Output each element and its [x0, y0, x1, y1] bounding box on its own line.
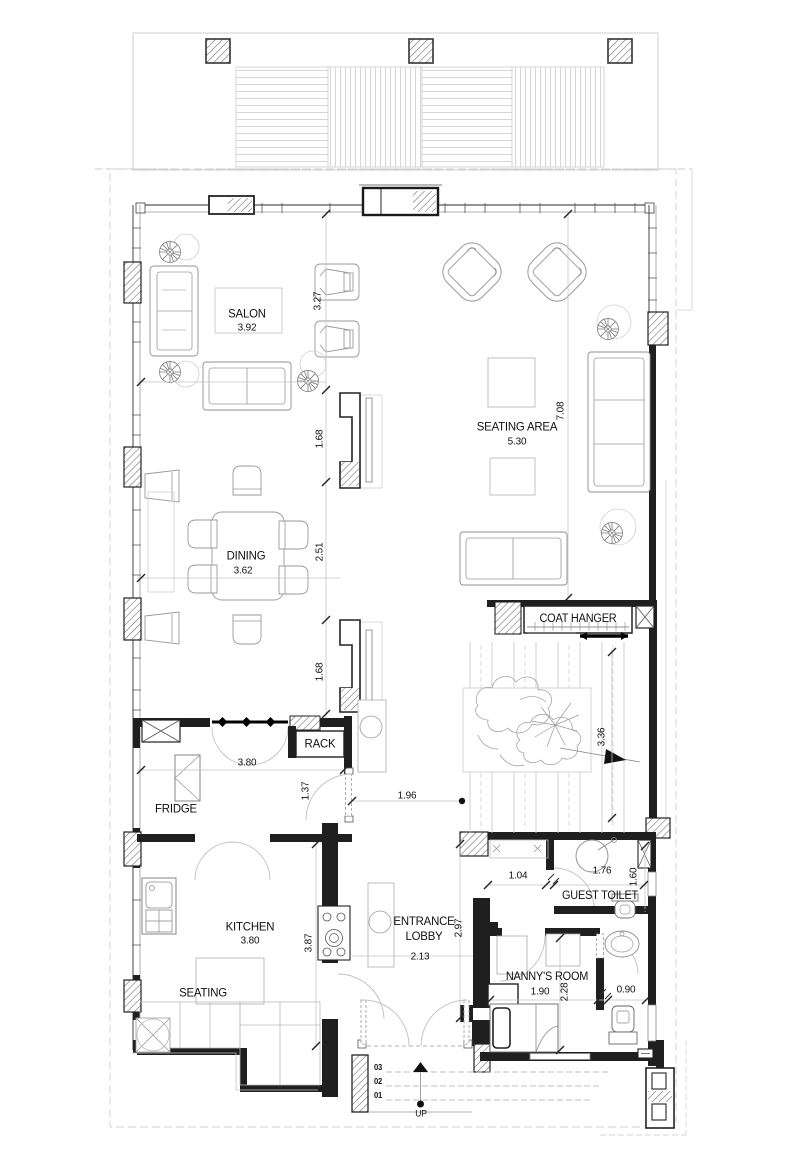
pantry-door — [306, 768, 353, 822]
dim-lobby-depth: 2.97 — [452, 919, 465, 938]
label-kitchen-seating: SEATING — [179, 986, 227, 1001]
stair-direction-arrow — [604, 749, 626, 764]
seating-area-furniture — [437, 237, 650, 585]
dim-salon-depth: 3.27 — [311, 292, 324, 311]
entrance-steps — [386, 1062, 610, 1108]
label-rack: RACK — [305, 737, 336, 752]
entrance-door — [358, 1000, 472, 1048]
dim-hall-passage: 1.96 — [398, 789, 417, 802]
kitchen-door-arcs — [195, 842, 270, 880]
shaft-box — [636, 606, 654, 628]
room-label-entrance-lobby: ENTRANCE LOBBY — [386, 914, 462, 944]
dim-seating-area-width: 5.30 — [508, 435, 527, 448]
porch-pier-left — [352, 1055, 368, 1112]
step-label-01: 01 — [374, 1091, 382, 1101]
terrace-columns — [206, 39, 632, 63]
kitchen-sink — [142, 878, 176, 934]
dim-corridor-width: 1.04 — [509, 869, 528, 882]
dim-nanny-depth: 2.28 — [558, 983, 571, 1002]
room-label-nannys-room: NANNY'S ROOM — [506, 970, 588, 984]
room-label-seating-area: SEATING AREA — [477, 420, 558, 435]
floor-plan: SALON 3.92 3.27 SEATING AREA 5.30 7.08 1… — [0, 0, 786, 1158]
dim-guest-toilet-width: 1.76 — [593, 864, 612, 877]
hall-console — [358, 700, 386, 772]
staircase — [463, 642, 640, 833]
room-label-kitchen: KITCHEN — [226, 920, 275, 935]
nanny-bed — [490, 1004, 558, 1052]
step-label-02: 02 — [374, 1077, 382, 1087]
kitchen-corner-table — [136, 1018, 170, 1052]
dim-kitchen-depth: 3.87 — [302, 934, 315, 953]
top-wall-niche-small — [209, 196, 254, 214]
dim-kitchen-width: 3.80 — [241, 934, 260, 947]
right-wall-pier — [648, 312, 668, 345]
up-arrow — [413, 1062, 428, 1072]
dim-dining-width: 3.62 — [234, 564, 253, 577]
dim-stair-run: 3.36 — [595, 728, 608, 747]
dim-nanny-bath-width: 0.90 — [617, 983, 636, 996]
corner-column — [638, 1040, 674, 1128]
step-label-03: 03 — [374, 1063, 382, 1073]
label-coat-hanger: COAT HANGER — [539, 612, 616, 626]
floor-plan-drawing — [0, 0, 786, 1158]
room-label-guest-toilet: GUEST TOILET — [562, 889, 638, 903]
label-up: UP — [415, 1108, 427, 1119]
top-wall-niche-large — [359, 185, 442, 215]
terrace-deck — [95, 33, 692, 170]
dim-tv-wall-lower: 1.68 — [313, 663, 326, 682]
dim-salon-width: 3.92 — [238, 321, 257, 334]
pantry-fixtures — [142, 720, 200, 801]
dim-lobby-width: 2.13 — [411, 950, 430, 963]
dim-kitchen-door: 3.80 — [238, 756, 257, 769]
dim-dining-depth: 2.51 — [313, 543, 326, 562]
tv-wall-upper — [340, 393, 382, 488]
tv-wall-lower — [340, 620, 382, 712]
dim-guest-toilet-depth: 1.60 — [627, 868, 640, 887]
dim-pantry-door: 1.37 — [299, 782, 312, 801]
nanny-bath-wc — [609, 1006, 637, 1044]
room-label-dining: DINING — [227, 549, 266, 564]
dim-seating-area-depth: 7.08 — [554, 402, 567, 421]
stove — [318, 906, 350, 960]
dim-nanny-width: 1.90 — [531, 985, 550, 998]
dim-tv-wall-upper: 1.68 — [313, 430, 326, 449]
fridge-appliance — [175, 755, 200, 801]
label-fridge: FRIDGE — [155, 802, 197, 817]
room-label-salon: SALON — [228, 307, 266, 322]
